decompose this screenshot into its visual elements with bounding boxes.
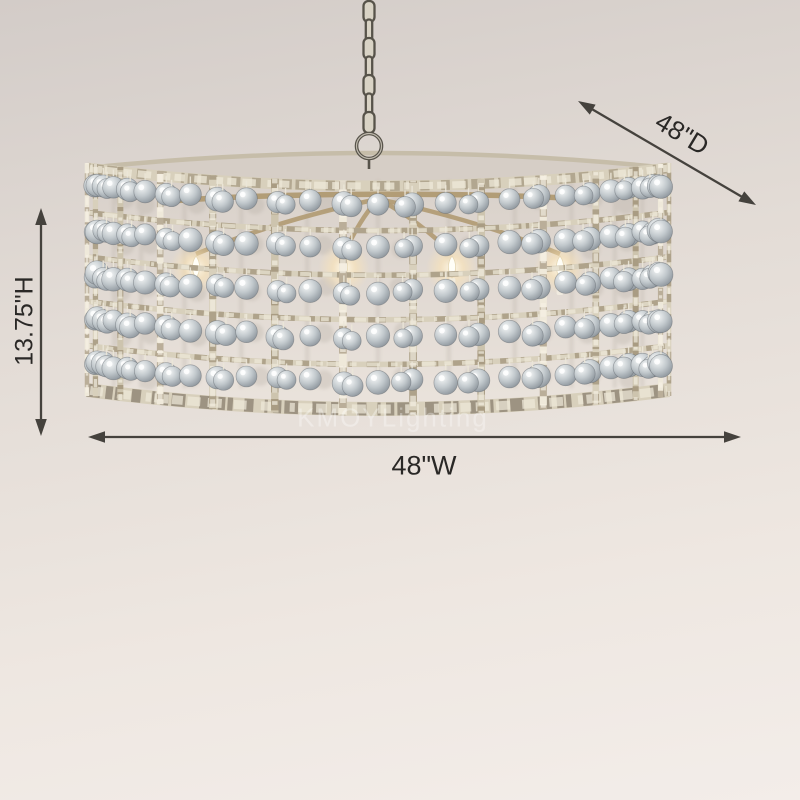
width-arrow	[88, 431, 741, 443]
hanging-chain	[357, 1, 382, 169]
width-dimension-label: 48"W	[391, 451, 456, 482]
product-dimension-diagram: KMOYLighting 48"D 13.75"H 48"W	[0, 0, 800, 800]
height-dimension-label: 13.75"H	[11, 276, 40, 366]
drum-shade	[84, 153, 673, 415]
